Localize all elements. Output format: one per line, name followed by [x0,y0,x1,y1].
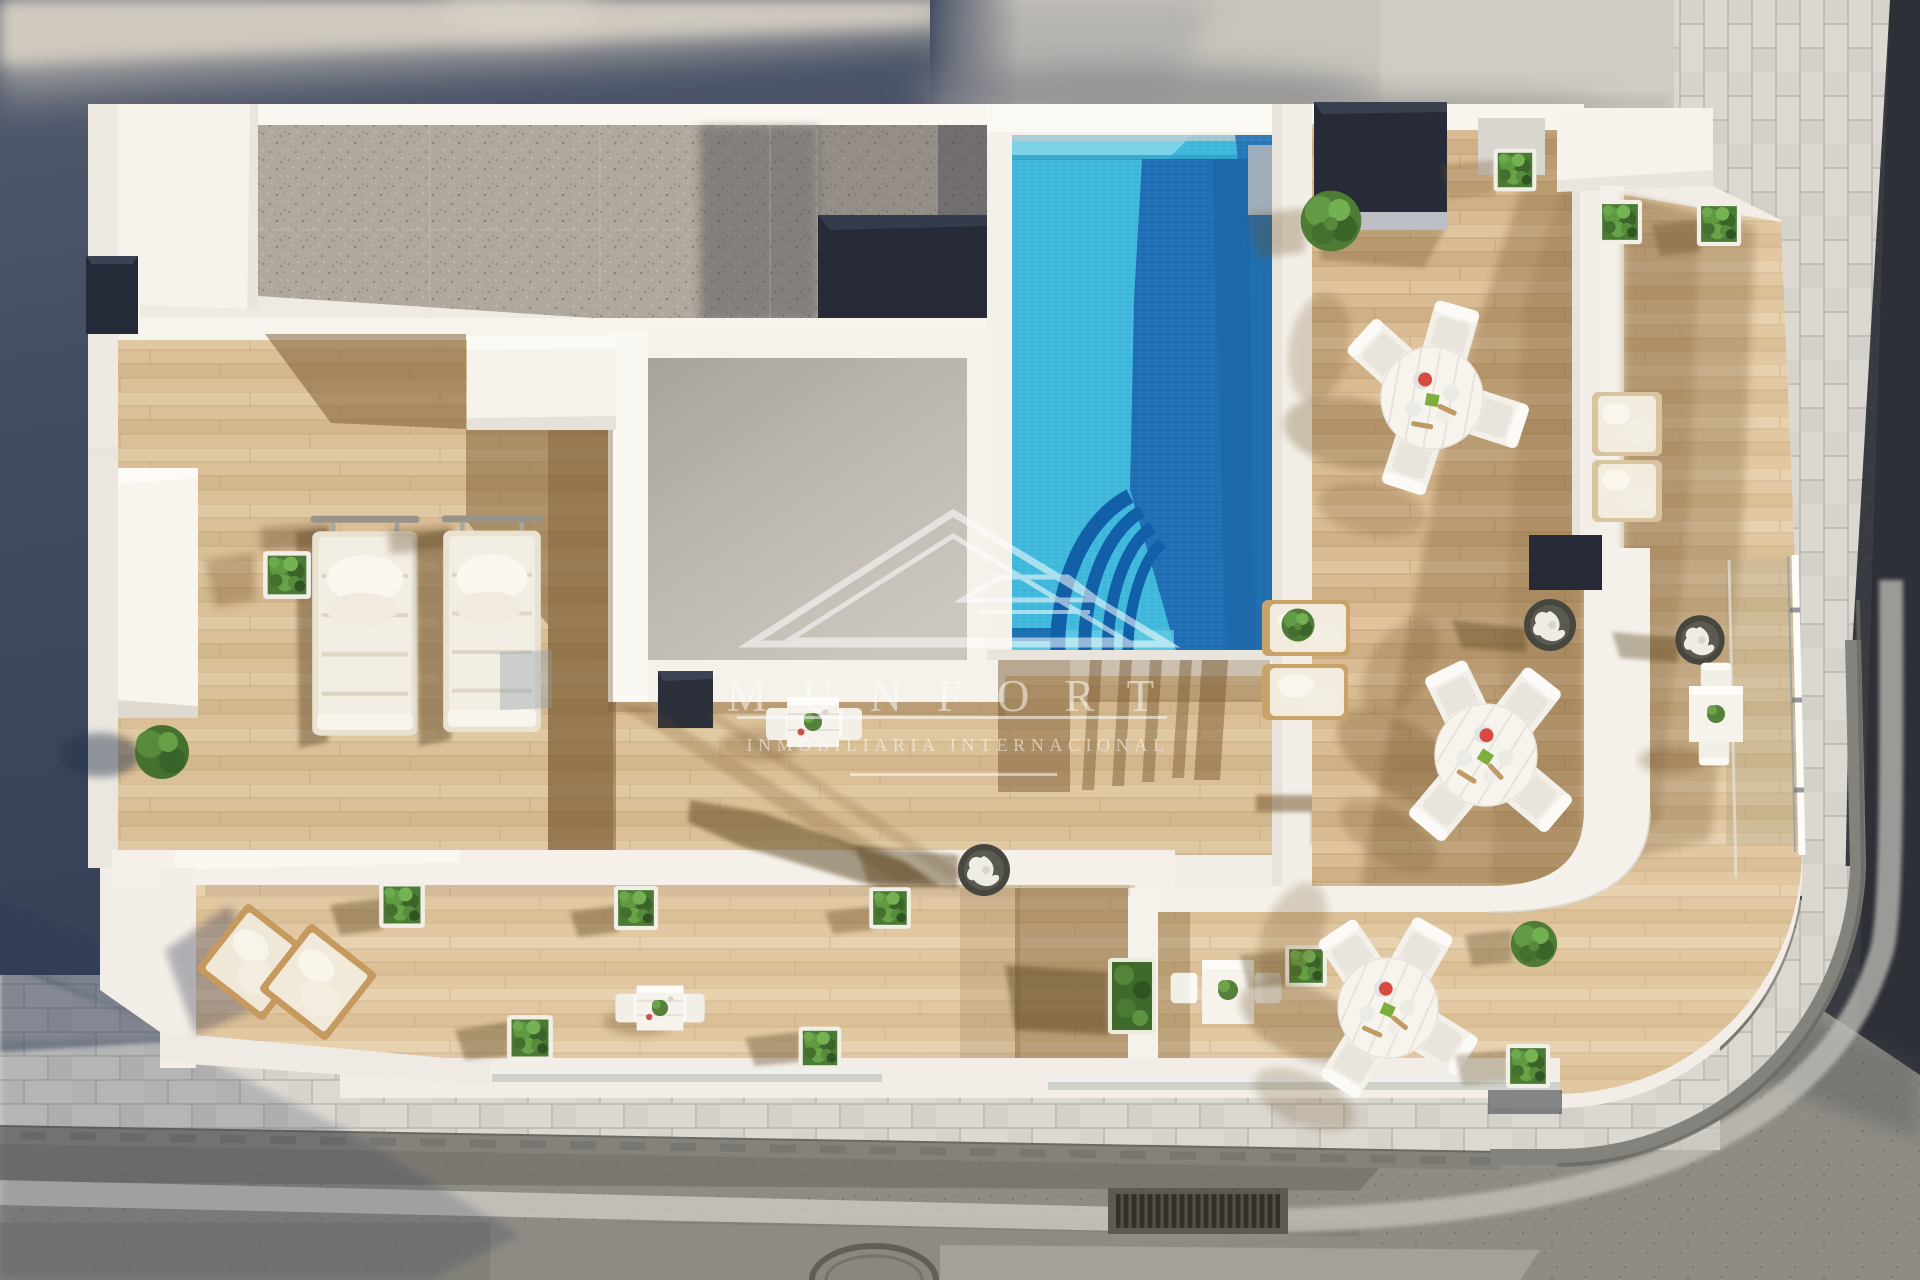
svg-text:MUNFORT: MUNFORT [727,671,1189,721]
svg-text:INMOBILIARIA INTERNACIONAL: INMOBILIARIA INTERNACIONAL [746,735,1169,755]
